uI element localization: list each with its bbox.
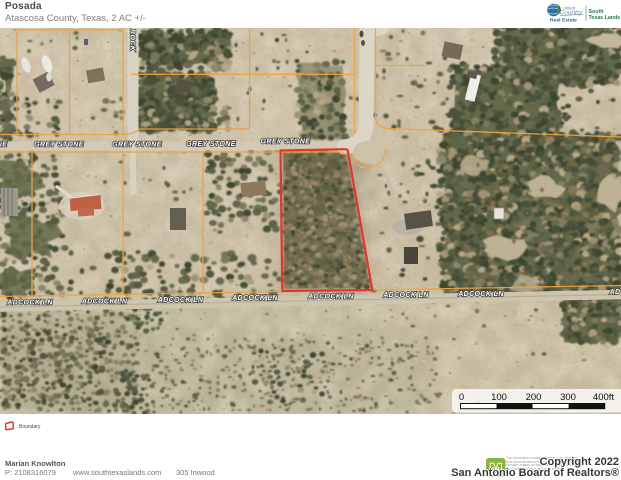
- svg-text:Real Estate: Real Estate: [550, 18, 577, 24]
- svg-text:Texas Lands: Texas Lands: [589, 15, 621, 21]
